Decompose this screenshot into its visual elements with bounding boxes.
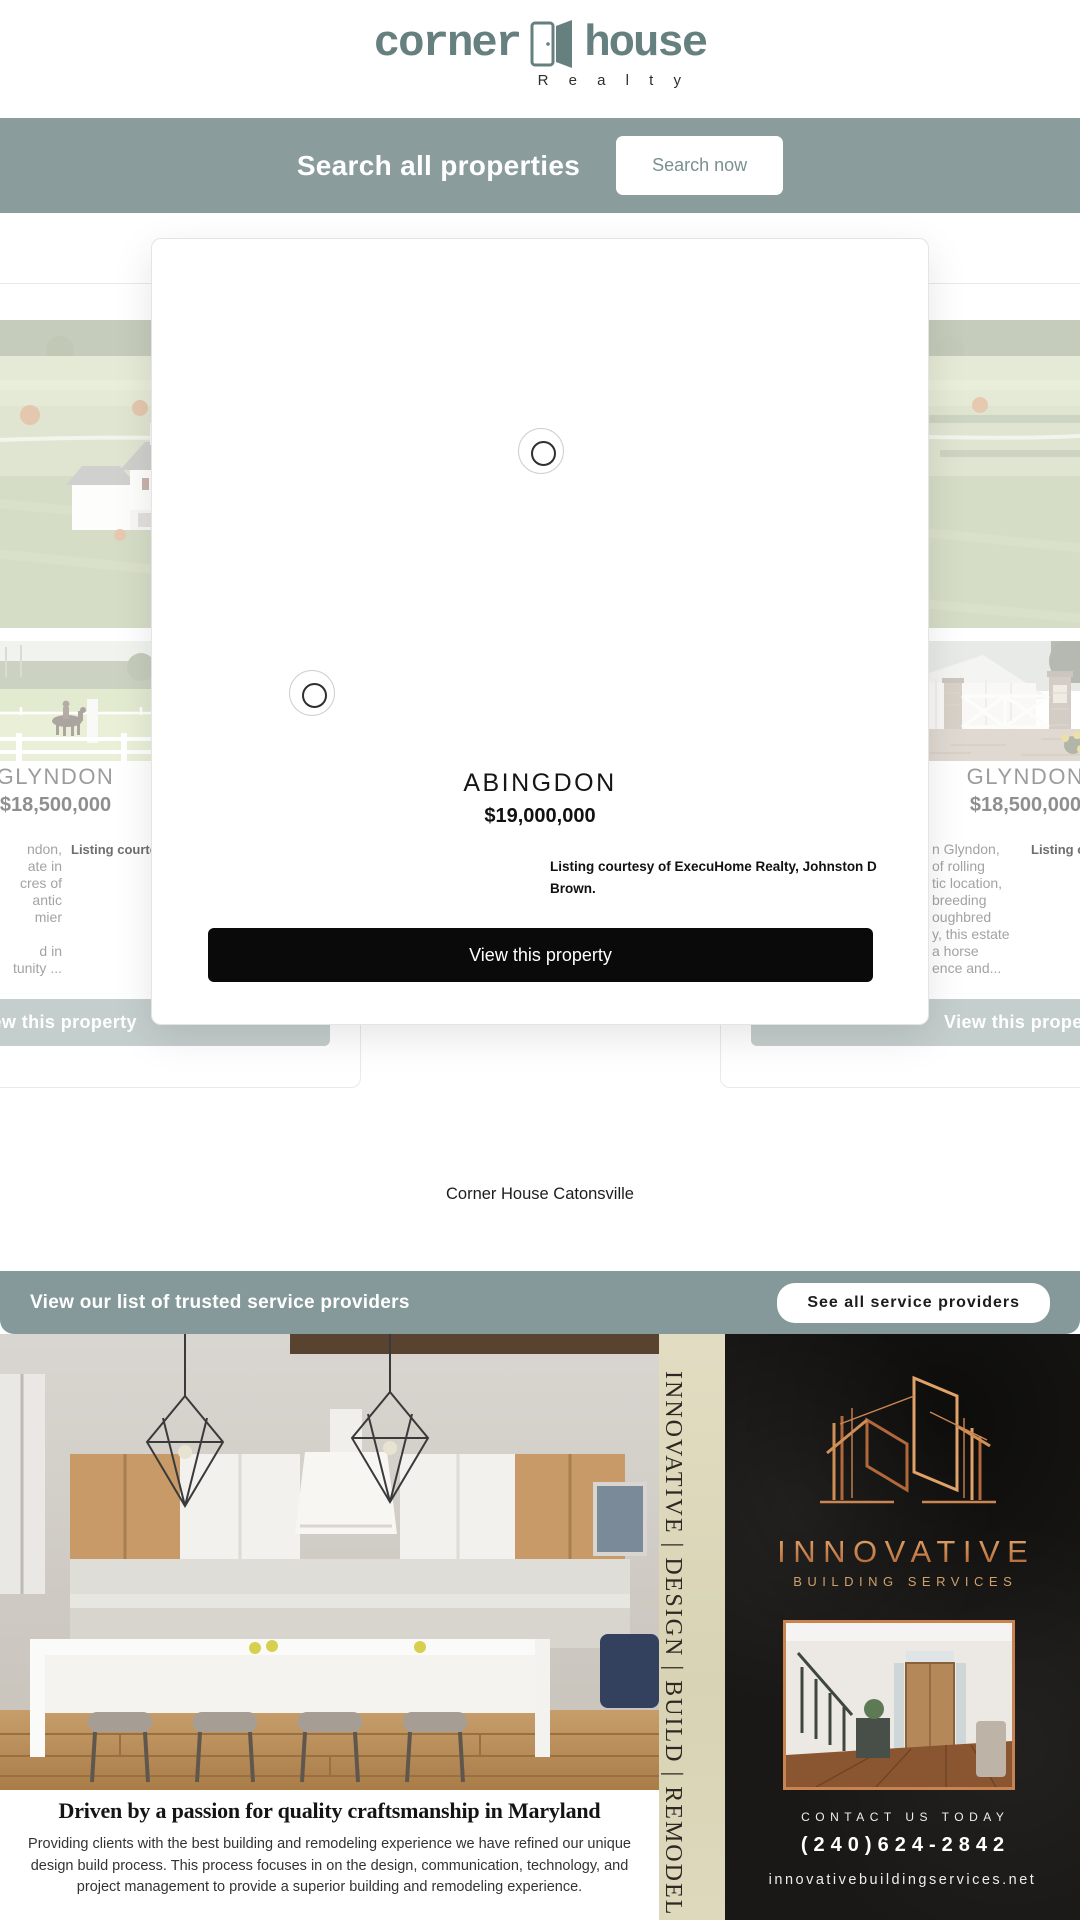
door-icon [526, 18, 578, 70]
logo[interactable]: corner house R e a l t y [0, 18, 1080, 89]
search-banner: Search all properties Search now [0, 118, 1080, 213]
property-quickview-modal: ABINGDON $19,000,000 Listing courtesy of… [151, 238, 929, 1025]
kitchen-photo [0, 1334, 659, 1790]
service-providers-banner: View our list of trusted service provide… [0, 1271, 1080, 1334]
ad-vertical-strip: INNOVATIVE | DESIGN | BUILD | REMODEL [659, 1334, 725, 1920]
ad-headline: Driven by a passion for quality craftsma… [0, 1798, 659, 1824]
modal-property-price: $19,000,000 [152, 805, 928, 828]
ad-website-link[interactable]: innovativebuildingservices.net [725, 1872, 1080, 1888]
service-providers-label: View our list of trusted service provide… [30, 1292, 410, 1314]
ad-phone-number: (240)624-2842 [725, 1834, 1080, 1857]
innovative-building-services-logo-icon [782, 1368, 1022, 1523]
ad-right-panel: INNOVATIVE BUILDING SERVICES [725, 1334, 1080, 1920]
loading-spinner-icon [518, 428, 564, 474]
ad-paragraph: Providing clients with the best building… [27, 1834, 633, 1899]
modal-listing-courtesy: Listing courtesy of ExecuHome Realty, Jo… [550, 856, 880, 900]
innovative-building-services-ad[interactable]: Driven by a passion for quality craftsma… [0, 1334, 1080, 1920]
search-banner-label: Search all properties [297, 150, 580, 182]
ad-brand-name: INNOVATIVE [725, 1534, 1080, 1570]
card-description: ndon, ate in cres of antic mier d in tun… [0, 841, 62, 977]
search-now-button[interactable]: Search now [616, 136, 783, 195]
ad-brand-subtitle: BUILDING SERVICES [725, 1574, 1080, 1589]
ad-left-panel: Driven by a passion for quality craftsma… [0, 1334, 659, 1920]
catonsville-label: Corner House Catonsville [0, 1185, 1080, 1204]
hallway-photo [783, 1620, 1015, 1790]
logo-text-corner: corner [374, 19, 520, 69]
logo-wordmark: corner house [374, 18, 706, 70]
loading-spinner-icon [289, 670, 335, 716]
ad-contact-label: CONTACT US TODAY [725, 1810, 1080, 1824]
modal-property-title: ABINGDON [152, 769, 928, 798]
logo-text-house: house [584, 19, 706, 69]
ad-copy: Driven by a passion for quality craftsma… [0, 1790, 659, 1920]
ad-vertical-text: INNOVATIVE | DESIGN | BUILD | REMODEL [659, 1364, 686, 1920]
see-all-service-providers-button[interactable]: See all service providers [777, 1283, 1050, 1323]
card-description: n Glyndon, of rolling tic location, bree… [932, 841, 1080, 977]
page: corner house R e a l t y Search all prop… [0, 0, 1080, 1920]
logo-subtitle: R e a l t y [385, 72, 695, 89]
header: corner house R e a l t y [0, 0, 1080, 118]
view-this-property-button[interactable]: View this property [208, 928, 873, 982]
card-listing-courtesy: Listing courtesy of [1031, 842, 1080, 857]
